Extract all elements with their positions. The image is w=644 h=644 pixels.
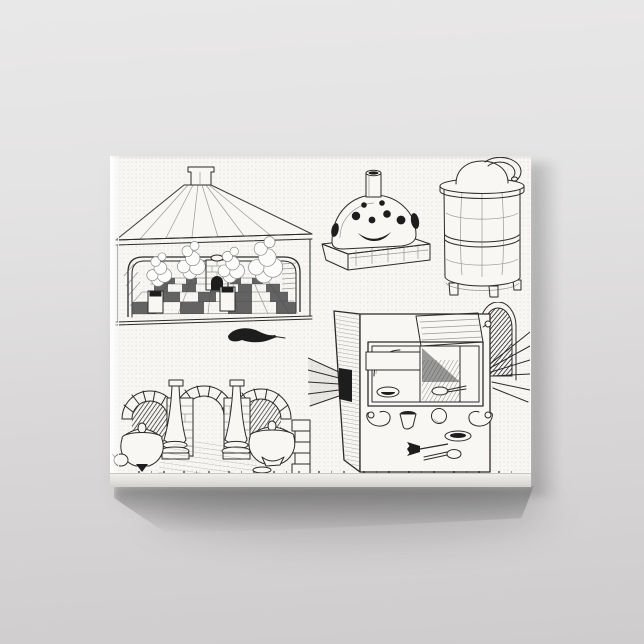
canvas-left-lit-edge bbox=[110, 156, 119, 487]
cylindrical-furnace-engraving bbox=[436, 157, 530, 299]
canvas-top-fold bbox=[110, 156, 531, 160]
louvers bbox=[282, 263, 296, 289]
wall-shadow-soft bbox=[150, 480, 550, 540]
wall-shadow-right bbox=[530, 163, 560, 497]
bird-silhouette bbox=[228, 328, 285, 342]
canvas-bottom-wrap-edge bbox=[110, 473, 531, 487]
domed-furnace-engraving bbox=[316, 166, 434, 280]
ground bbox=[158, 441, 258, 474]
canvas-print-product[interactable] bbox=[110, 156, 531, 487]
hipped-roof bbox=[116, 185, 312, 240]
spoon bbox=[447, 450, 461, 459]
chimney-pipe bbox=[366, 170, 381, 197]
chimney bbox=[188, 167, 214, 185]
arched-hearths-engraving bbox=[112, 324, 318, 479]
alembic-head bbox=[456, 161, 508, 184]
gray-wall-background bbox=[0, 0, 644, 644]
side-vent bbox=[339, 368, 352, 402]
distillation-house-engraving bbox=[114, 164, 314, 326]
cubic-furnace-engraving bbox=[308, 302, 530, 478]
